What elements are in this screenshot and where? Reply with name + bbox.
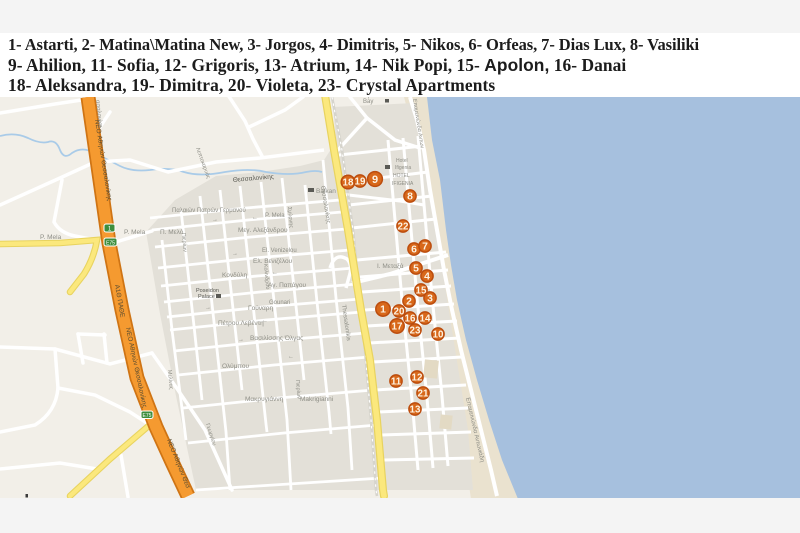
svg-text:14: 14 bbox=[420, 314, 431, 325]
svg-text:1: 1 bbox=[380, 305, 386, 316]
svg-text:4: 4 bbox=[424, 272, 430, 283]
svg-text:Αγ. Παπάγου: Αγ. Παπάγου bbox=[268, 281, 307, 289]
svg-text:Ι. Μεταξά: Ι. Μεταξά bbox=[377, 262, 404, 270]
svg-text:E75: E75 bbox=[143, 413, 152, 419]
svg-text:←: ← bbox=[288, 354, 294, 360]
svg-text:HOTEL: HOTEL bbox=[393, 173, 410, 179]
svg-text:Ρ. Μela: Ρ. Μela bbox=[265, 213, 285, 219]
svg-text:16: 16 bbox=[405, 314, 416, 325]
svg-text:Makrigianni: Makrigianni bbox=[300, 396, 333, 403]
svg-text:→: → bbox=[238, 337, 244, 343]
svg-text:23: 23 bbox=[410, 326, 421, 337]
svg-text:Μεγ. Αλεξάνδρου: Μεγ. Αλεξάνδρου bbox=[238, 226, 288, 234]
svg-text:→: → bbox=[212, 217, 218, 223]
svg-text:←: ← bbox=[272, 270, 278, 276]
svg-text:→: → bbox=[232, 251, 238, 257]
svg-text:Ifigenia: Ifigenia bbox=[395, 165, 411, 171]
svg-text:21: 21 bbox=[418, 389, 429, 400]
svg-text:11: 11 bbox=[391, 377, 402, 388]
svg-text:5: 5 bbox=[413, 264, 419, 275]
svg-text:17: 17 bbox=[392, 322, 403, 333]
svg-text:Bay: Bay bbox=[363, 99, 373, 105]
svg-text:El. Venizelou: El. Venizelou bbox=[262, 248, 297, 254]
svg-text:Ρ. Μela: Ρ. Μela bbox=[40, 234, 62, 241]
svg-text:2: 2 bbox=[406, 297, 412, 308]
svg-text:Ελ. Βενιζέλου: Ελ. Βενιζέλου bbox=[253, 257, 293, 265]
svg-text:9: 9 bbox=[372, 174, 378, 186]
svg-text:Παλαιών Πατρών Γερμανού: Παλαιών Πατρών Γερμανού bbox=[172, 208, 246, 214]
svg-text:Palace: Palace bbox=[198, 294, 215, 300]
svg-text:13: 13 bbox=[410, 405, 421, 416]
svg-text:22: 22 bbox=[398, 222, 409, 233]
svg-text:Ρ. Μela: Ρ. Μela bbox=[124, 229, 146, 236]
svg-text:Κονδύλη: Κονδύλη bbox=[222, 271, 248, 279]
svg-text:←: ← bbox=[262, 318, 268, 324]
svg-text:←: ← bbox=[252, 215, 258, 221]
svg-text:7: 7 bbox=[422, 242, 428, 253]
svg-text:Hotel: Hotel bbox=[396, 158, 408, 164]
svg-text:E75: E75 bbox=[106, 241, 115, 247]
svg-text:20: 20 bbox=[394, 307, 405, 318]
svg-text:8: 8 bbox=[407, 192, 413, 203]
svg-text:6: 6 bbox=[411, 245, 417, 256]
svg-text:Πέτρου Λεβέντη: Πέτρου Λεβέντη bbox=[218, 319, 264, 327]
svg-text:18: 18 bbox=[343, 178, 354, 189]
svg-text:→: → bbox=[205, 305, 211, 311]
svg-text:Βασιλίσσης Όλγας: Βασιλίσσης Όλγας bbox=[250, 334, 303, 342]
svg-text:Μακρυγιάννη: Μακρυγιάννη bbox=[245, 395, 284, 403]
svg-text:12: 12 bbox=[412, 373, 423, 384]
svg-text:Ολύμπου: Ολύμπου bbox=[222, 362, 249, 370]
svg-text:IFIGENIA: IFIGENIA bbox=[392, 181, 414, 187]
svg-text:Ολύμπιον: Ολύμπιον bbox=[357, 93, 383, 99]
svg-text:19: 19 bbox=[355, 177, 366, 188]
svg-text:3: 3 bbox=[427, 294, 433, 305]
svg-text:10: 10 bbox=[433, 330, 444, 341]
svg-text:Γούναρη: Γούναρη bbox=[248, 304, 273, 312]
